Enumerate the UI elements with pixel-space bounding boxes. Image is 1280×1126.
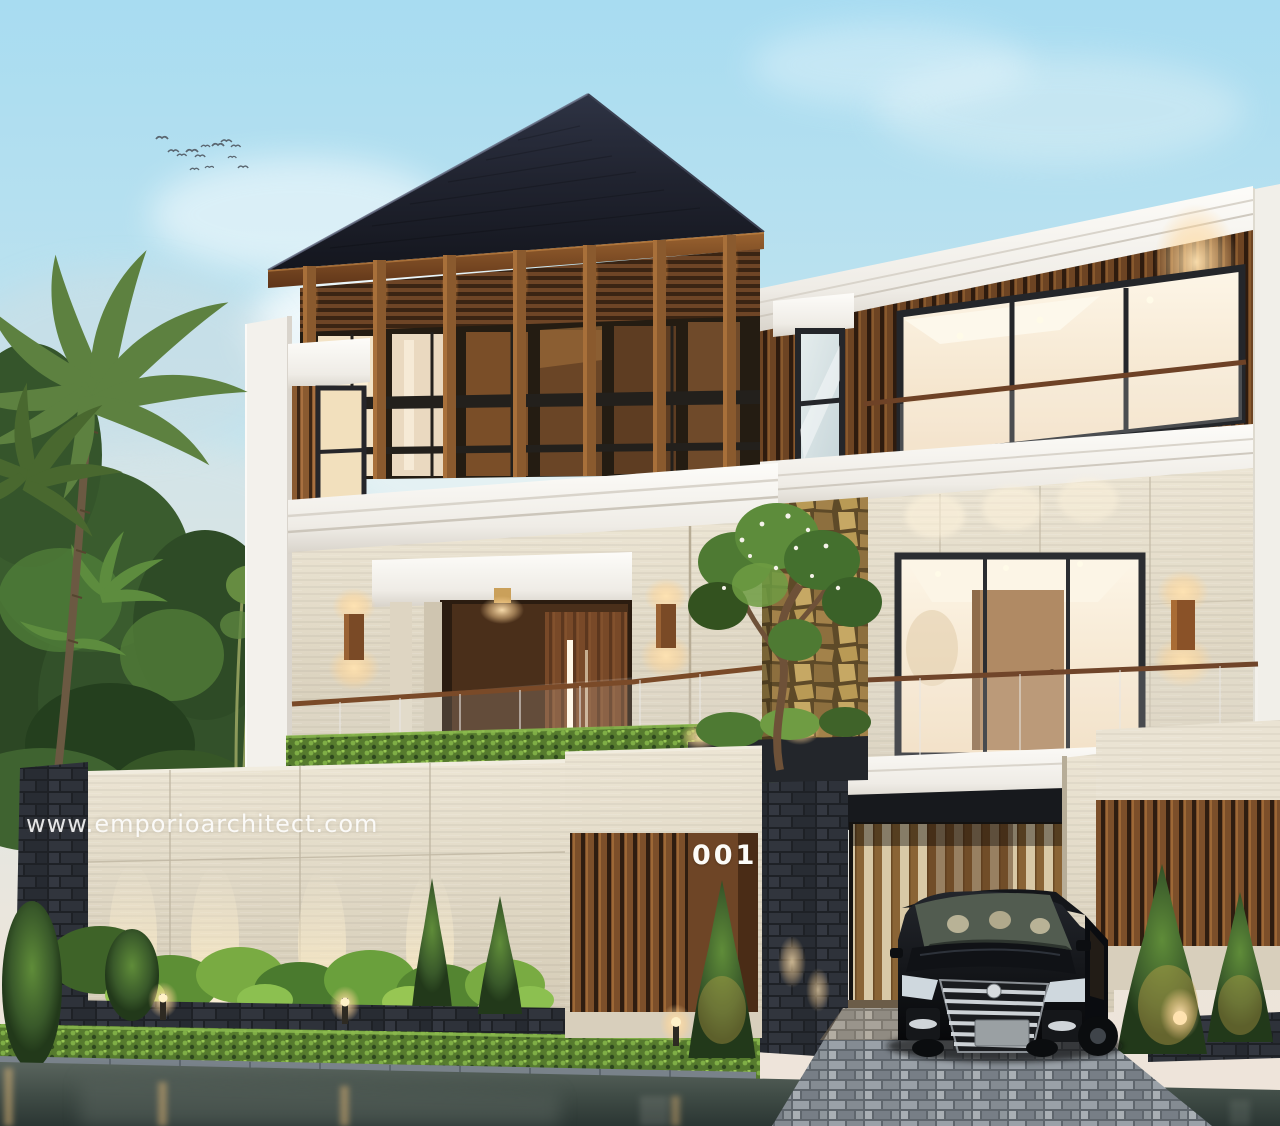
left-white-pillar — [246, 316, 292, 804]
architectural-render: www.emporioarchitect.com 001 — [0, 0, 1280, 1126]
fence-wood-slats — [1096, 800, 1280, 950]
car-mirror — [1076, 940, 1091, 951]
watermark: www.emporioarchitect.com — [26, 810, 378, 838]
dark-stone-wall — [755, 742, 848, 1058]
car-license-plate — [975, 1020, 1029, 1046]
house-number-sign: 001 — [692, 840, 757, 871]
scene-canvas — [0, 0, 1280, 1126]
car-mirror — [890, 948, 903, 958]
gate-slat-panel — [570, 833, 688, 1013]
